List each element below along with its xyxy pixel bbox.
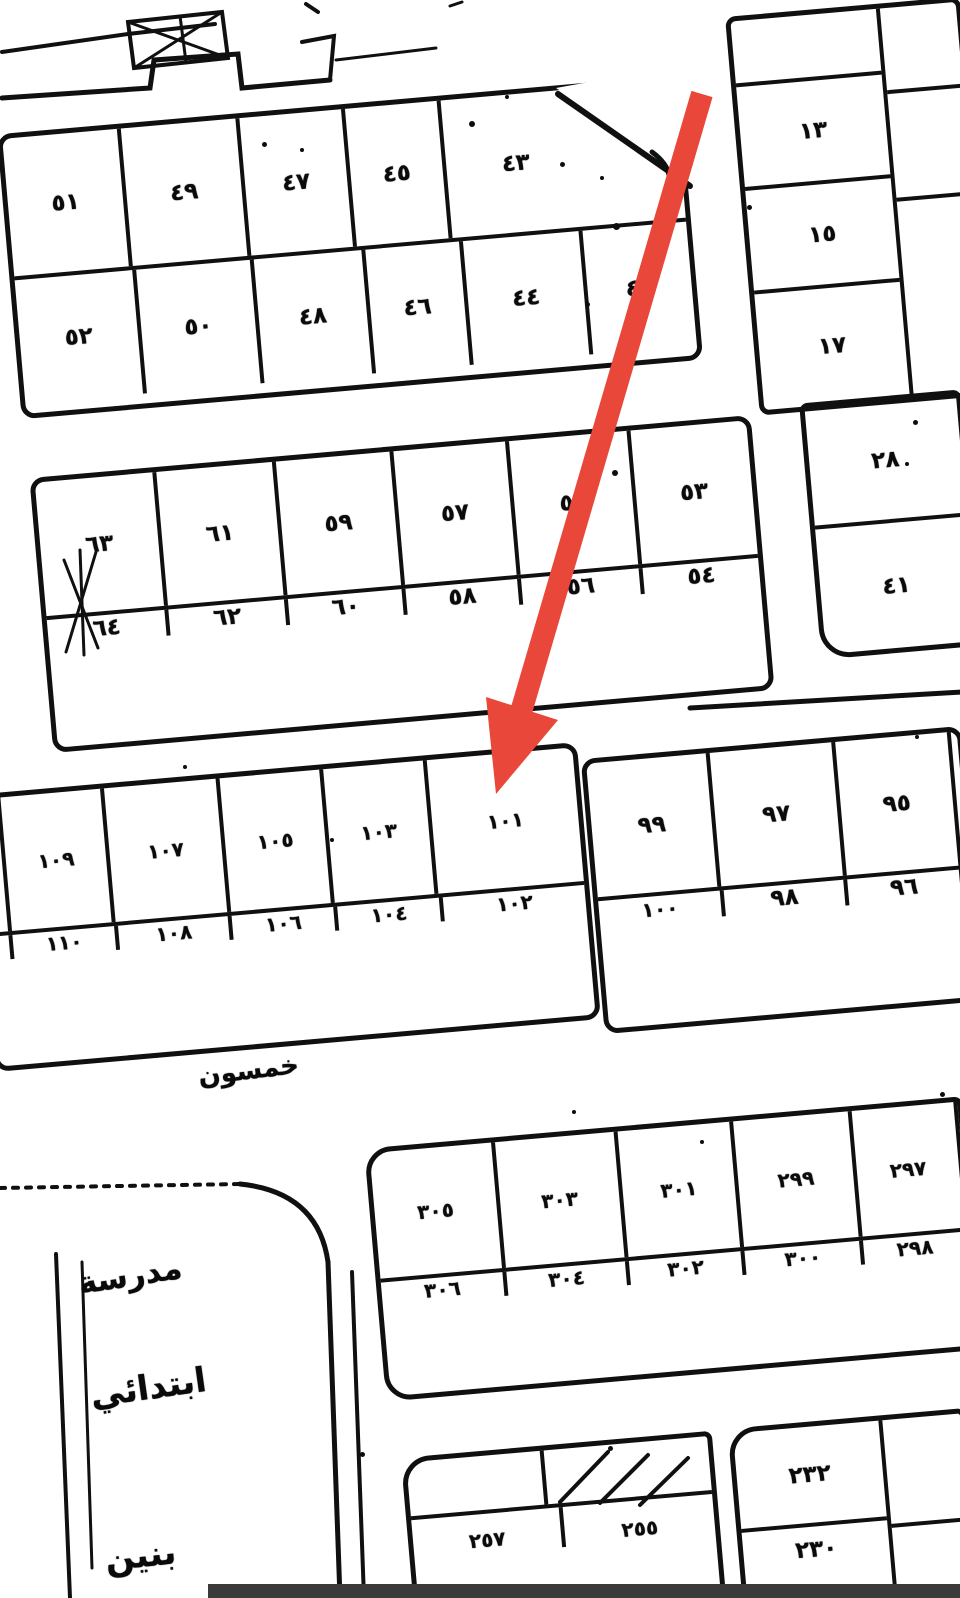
scan-speck [747, 205, 752, 210]
scan-speck [940, 1092, 945, 1097]
block-plots-40s: ٥١ ٤٩ ٤٧ ٤٥ ٤٣ ٥٢ ٥٠ ٤٨ ٤٦ ٤٤ ٤٢ [0, 75, 703, 420]
block-plots-13-17: ١٣ ١٥ ١٧ [725, 0, 960, 416]
scan-speck [572, 1110, 576, 1114]
plot-cell-partial [887, 88, 960, 202]
plot-cell: ٩٥ [835, 732, 960, 876]
plot-cell: ٥٩ [276, 451, 405, 595]
bottom-dark-bar [208, 1584, 960, 1598]
scan-speck [700, 1140, 704, 1144]
plot-cell: ٦٣ [35, 472, 168, 616]
scan-speck [330, 838, 334, 842]
plot-cell: ٥٧ [393, 441, 520, 585]
plot-cell: ٤٩ [121, 118, 252, 266]
block-plots-232-230: ٢٣٢ ٢٣٠ [727, 1408, 960, 1598]
plot-cell: ٩٩ [586, 753, 721, 897]
plot-cell: ١٠٩ [0, 788, 115, 931]
scan-speck [608, 1446, 613, 1451]
plot-cell: ١٠٧ [104, 778, 231, 922]
block-plots-50s-60s: ٦٣ ٦١ ٥٩ ٥٧ ٥٥ ٥٣ ٦٤ ٦٢ ٦٠ ٥٨ ٥٦ ٥٤ [29, 415, 774, 753]
block-plots-100s-west: ١٠٩ ١٠٧ ١٠٥ ١٠٣ ١٠١ ١١٠ ١٠٨ ١٠٦ ١٠٤ ١٠٢ [0, 742, 601, 1072]
plot-cell: ٣٠٣ [495, 1131, 629, 1267]
plot-cell: ٤٤ [463, 231, 593, 365]
plot-cell: ٥٥ [509, 431, 642, 575]
plot-cell: ٢٩٩ [733, 1111, 863, 1247]
plot-cell: ١٠٥ [220, 769, 335, 912]
scan-speck [600, 176, 604, 180]
plot-cell: ٤١ [815, 516, 960, 654]
scan-speck [585, 302, 590, 307]
block-plots-28-41: ٢٨ ٤١ [799, 389, 960, 659]
plot-cell: ٥٠ [136, 259, 264, 393]
plot-cell: ٥٢ [15, 270, 147, 404]
school-label-line3: بنين [103, 1532, 178, 1579]
plot-cell: ٦١ [156, 462, 287, 606]
scan-speck [613, 223, 620, 230]
plot-cell: ٤٦ [365, 241, 473, 373]
hatched-cell [544, 1436, 712, 1504]
plot-cell: ٤٣ [441, 80, 686, 238]
plot-cell: ٢٣٢ [733, 1421, 887, 1533]
block-plots-257-255: ٢٥٧ ٢٥٥ [401, 1431, 728, 1598]
block-plots-90s: ٩٩ ٩٧ ٩٥ ١٠٠ ٩٨ ٩٦ [581, 726, 960, 1034]
scan-speck [505, 95, 509, 99]
scan-speck [913, 420, 918, 425]
plot-cell: ١٣ [736, 75, 891, 191]
scan-speck [183, 765, 187, 769]
scan-speck [262, 142, 267, 147]
plot-cell: ٥٣ [630, 420, 757, 564]
plot-cell: ٣٠٥ [369, 1142, 505, 1278]
plot-cell-partial [406, 1450, 548, 1516]
plot-cell-partial [880, 2, 960, 94]
scan-speck [469, 121, 475, 127]
plot-cell: ٤٥ [345, 101, 453, 247]
map-canvas[interactable]: ٥١ ٤٩ ٤٧ ٤٥ ٤٣ ٥٢ ٥٠ ٤٨ ٤٦ ٤٤ ٤٢ ٦٣ ٦١ ٥… [0, 0, 960, 1598]
block-plots-300s: ٣٠٥ ٣٠٣ ٣٠١ ٢٩٩ ٢٩٧ ٣٠٦ ٣٠٤ ٣٠٢ ٣٠٠ ٢٩٨ [364, 1096, 960, 1401]
plot-cell: ٤٨ [254, 250, 376, 383]
plot-cell: ٣٠١ [618, 1121, 744, 1257]
plot-cell-arrow-target: ١٠١ [427, 747, 584, 893]
street-width-label: خمسون [197, 1050, 301, 1092]
school-label-line2: ابتدائي [88, 1360, 209, 1416]
school-label-line1: مدرسة [76, 1250, 185, 1302]
scan-speck [360, 1452, 365, 1457]
plot-cell: ١٥ [745, 178, 900, 294]
plot-cell: ٩٧ [710, 742, 847, 886]
plot-cell: ٢٩٧ [852, 1102, 960, 1237]
plot-cell: ١٠٣ [323, 760, 438, 903]
scan-speck [915, 735, 919, 739]
scan-speck [560, 162, 565, 167]
plot-cell: ٥١ [2, 129, 133, 277]
plot-cell: ٤٢ [582, 222, 696, 355]
scan-speck [300, 148, 304, 152]
plot-cell: ٤٧ [239, 109, 357, 256]
plot-cell: ٢٨ [805, 395, 960, 530]
scan-speck [905, 462, 909, 466]
plot-cell: ١٧ [754, 282, 910, 410]
plot-cell-partial [882, 1413, 960, 1527]
scan-speck [612, 470, 618, 476]
